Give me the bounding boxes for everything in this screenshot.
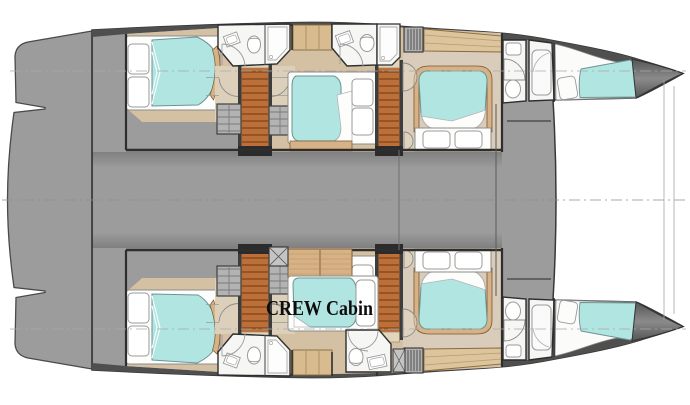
svg-text:CREW Cabin: CREW Cabin [266, 296, 373, 320]
